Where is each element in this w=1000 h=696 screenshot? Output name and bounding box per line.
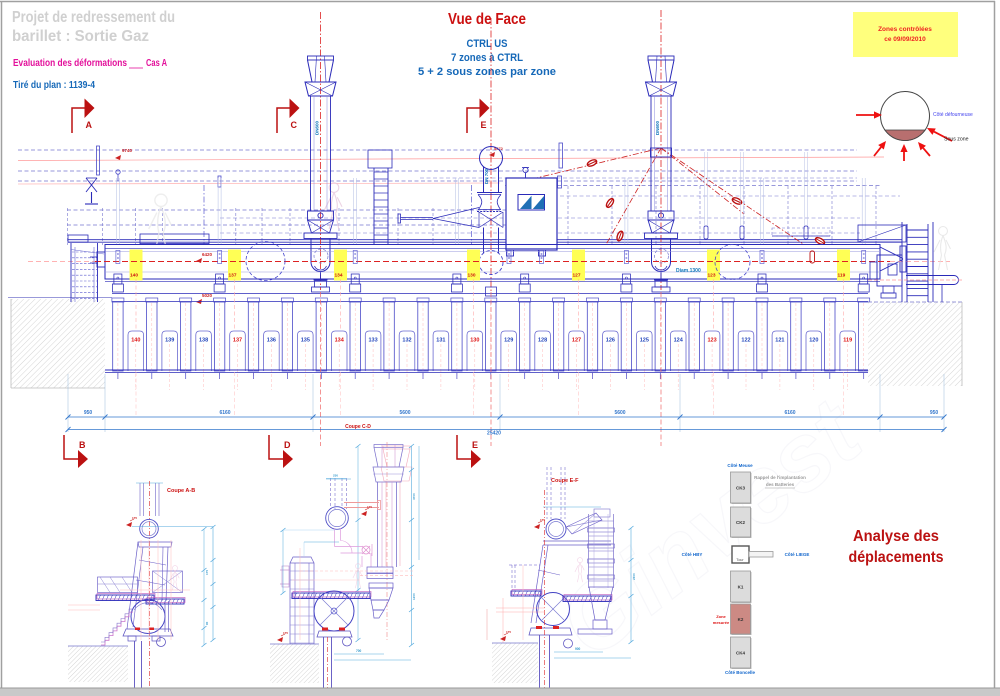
svg-text:130: 130 xyxy=(470,338,479,344)
svg-text:130: 130 xyxy=(468,273,476,279)
svg-text:6420: 6420 xyxy=(202,252,213,257)
svg-text:127: 127 xyxy=(572,338,581,344)
svg-text:9740: 9740 xyxy=(122,148,133,153)
svg-text:5600: 5600 xyxy=(614,410,625,416)
svg-text:Diam.1300: Diam.1300 xyxy=(676,268,701,274)
svg-text:déplacements: déplacements xyxy=(849,549,944,566)
svg-text:2300: 2300 xyxy=(632,573,636,580)
svg-text:E: E xyxy=(481,120,487,130)
svg-text:DN 700: DN 700 xyxy=(484,168,489,184)
svg-text:175: 175 xyxy=(367,505,372,509)
svg-text:Côté Boncelle: Côté Boncelle xyxy=(725,670,756,675)
svg-text:D: D xyxy=(284,440,291,450)
svg-text:131: 131 xyxy=(436,338,445,344)
svg-text:CTRL US: CTRL US xyxy=(467,38,508,50)
svg-text:119: 119 xyxy=(838,273,846,279)
svg-text:des Batteries: des Batteries xyxy=(766,482,795,487)
svg-text:1200: 1200 xyxy=(412,593,416,600)
svg-text:Coupe C-D: Coupe C-D xyxy=(345,424,371,430)
svg-text:136: 136 xyxy=(267,338,276,344)
svg-text:Rappel de l'implantation: Rappel de l'implantation xyxy=(754,475,806,480)
svg-text:Zones contrôlées: Zones contrôlées xyxy=(878,26,932,33)
svg-text:CK3: CK3 xyxy=(736,486,745,491)
svg-text:Côté HBY: Côté HBY xyxy=(682,552,703,557)
svg-text:122: 122 xyxy=(741,338,750,344)
svg-text:90: 90 xyxy=(205,621,209,625)
svg-text:CK4: CK4 xyxy=(736,651,745,656)
svg-text:CK2: CK2 xyxy=(736,520,745,525)
svg-text:Vue de Face: Vue de Face xyxy=(448,11,526,28)
svg-text:5600: 5600 xyxy=(399,410,410,416)
svg-text:137: 137 xyxy=(233,338,242,344)
svg-text:Zone: Zone xyxy=(716,614,726,619)
svg-text:Sous zone: Sous zone xyxy=(944,137,969,143)
svg-text:C: C xyxy=(291,120,298,130)
svg-text:E: E xyxy=(472,440,478,450)
svg-text:mesurée: mesurée xyxy=(713,620,730,625)
svg-text:4700: 4700 xyxy=(412,493,416,500)
svg-text:230: 230 xyxy=(333,474,338,478)
svg-text:950: 950 xyxy=(84,410,93,416)
svg-text:Analyse des: Analyse des xyxy=(853,528,939,545)
svg-text:135: 135 xyxy=(301,338,310,344)
svg-text:175: 175 xyxy=(506,630,511,634)
svg-text:137: 137 xyxy=(229,273,237,279)
svg-text:B: B xyxy=(79,440,86,450)
svg-text:900: 900 xyxy=(575,647,581,651)
svg-text:134: 134 xyxy=(335,338,345,344)
svg-text:134: 134 xyxy=(335,273,343,279)
svg-text:120: 120 xyxy=(809,338,818,344)
svg-text:6160: 6160 xyxy=(784,410,795,416)
svg-text:700: 700 xyxy=(356,649,362,653)
svg-text:5 + 2 sous zones par zone: 5 + 2 sous zones par zone xyxy=(418,66,556,78)
svg-text:139: 139 xyxy=(165,338,174,344)
svg-text:140: 140 xyxy=(130,273,138,279)
svg-text:127: 127 xyxy=(573,273,581,279)
svg-text:Tiré du plan : 1139-4: Tiré du plan : 1139-4 xyxy=(13,80,95,91)
svg-text:128: 128 xyxy=(538,338,547,344)
svg-text:175: 175 xyxy=(283,631,288,635)
svg-text:140: 140 xyxy=(131,338,140,344)
svg-text:121: 121 xyxy=(775,338,784,344)
svg-text:Coupe A-B: Coupe A-B xyxy=(167,488,195,494)
svg-text:950: 950 xyxy=(930,410,939,416)
svg-text:133: 133 xyxy=(369,338,378,344)
svg-text:7 zones à CTRL: 7 zones à CTRL xyxy=(451,52,523,64)
svg-text:Côté défourneuse: Côté défourneuse xyxy=(933,112,973,118)
svg-text:119: 119 xyxy=(843,338,852,344)
svg-text:DN600: DN600 xyxy=(315,120,320,135)
svg-text:126: 126 xyxy=(606,338,615,344)
svg-text:123: 123 xyxy=(708,338,717,344)
svg-text:129: 129 xyxy=(504,338,513,344)
svg-text:6160: 6160 xyxy=(219,410,230,416)
svg-text:barillet : Sortie Gaz: barillet : Sortie Gaz xyxy=(12,28,149,45)
svg-text:Cas A: Cas A xyxy=(146,58,167,69)
svg-text:132: 132 xyxy=(402,338,411,344)
svg-text:Evaluation des déformations: Evaluation des déformations xyxy=(13,58,127,69)
svg-text:175: 175 xyxy=(205,570,209,575)
svg-text:K2: K2 xyxy=(738,617,744,622)
svg-text:K1: K1 xyxy=(738,585,744,590)
svg-text:123: 123 xyxy=(708,273,716,279)
svg-text:Côté Meuse: Côté Meuse xyxy=(727,463,753,468)
svg-text:DN600: DN600 xyxy=(655,120,660,135)
svg-text:Tour: Tour xyxy=(736,558,744,562)
svg-text:138: 138 xyxy=(199,338,208,344)
svg-text:Côté LIEGE: Côté LIEGE xyxy=(785,552,810,557)
svg-text:125: 125 xyxy=(640,338,649,344)
svg-text:175: 175 xyxy=(132,516,137,520)
svg-text:124: 124 xyxy=(674,338,684,344)
svg-text:A: A xyxy=(86,120,93,130)
svg-text:Projet de redressement du: Projet de redressement du xyxy=(12,9,175,26)
svg-text:25420: 25420 xyxy=(487,431,501,437)
svg-text:ce 09/09/2010: ce 09/09/2010 xyxy=(884,36,926,43)
